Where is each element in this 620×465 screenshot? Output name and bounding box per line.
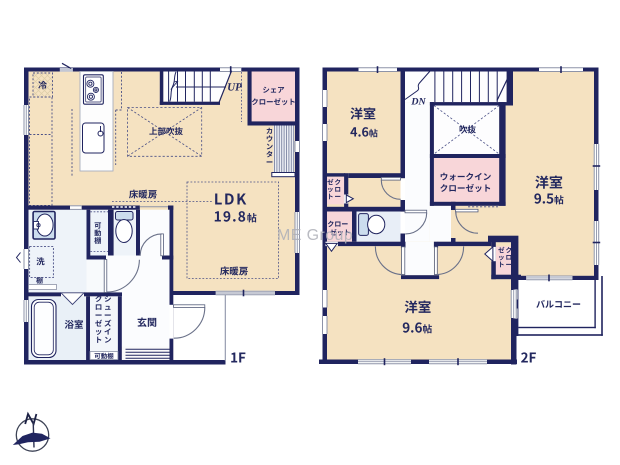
svg-text:ME Group: ME Group: [277, 227, 353, 244]
